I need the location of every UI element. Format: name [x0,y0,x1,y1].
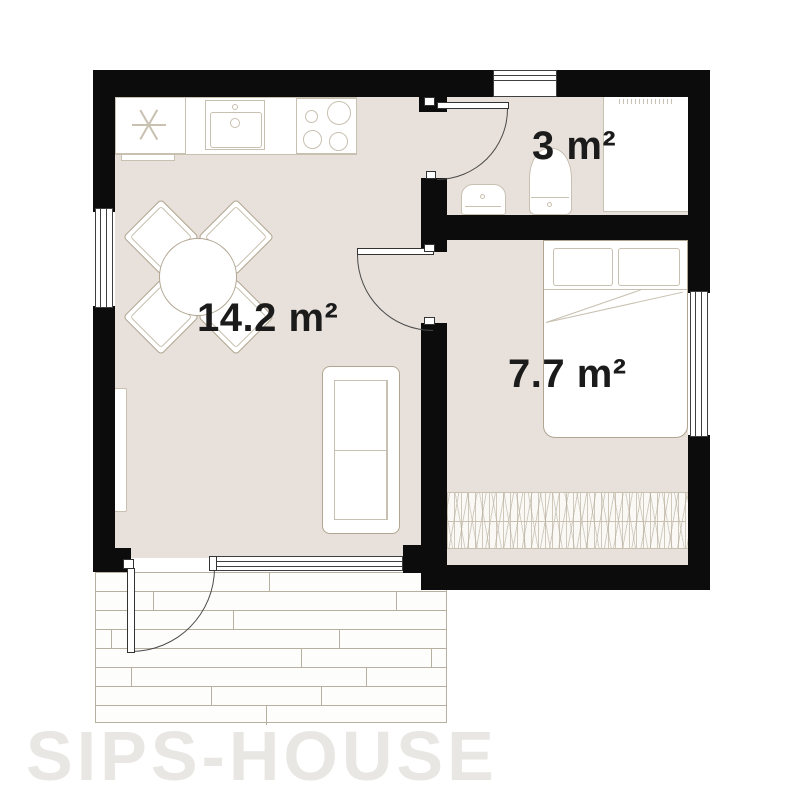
rug [440,492,688,549]
entry-door-leaf [127,568,135,653]
sofa [322,366,400,534]
deck-plank-seam [211,687,212,706]
deck-plank-seam [111,630,112,649]
deck-plank-seam [301,649,302,668]
stove-icon [296,98,357,154]
bed [543,240,688,438]
deck-plank-seam [269,573,270,592]
pillow [618,248,680,286]
bedroom-door-leaf [357,248,434,255]
deck-plank-seam [431,649,432,668]
wall-bath-bedroom [447,215,688,240]
deck-plank-seam [321,687,322,706]
drain-icon [230,118,240,128]
blanket-edge-line [544,289,687,290]
snowflake-icon [132,108,166,142]
pillow [553,248,613,286]
sink-front-line [465,206,501,207]
burner [329,132,348,151]
burner [303,130,322,149]
blanket-fold-line [546,289,641,323]
door-jamb [123,559,134,569]
room-label-living: 14.2 m² [197,296,338,341]
blanket-fold-line [546,292,683,323]
sink-drain-dot [480,194,485,199]
fridge-icon [115,97,186,154]
fridge-door-lip [121,154,175,161]
door-jamb [424,97,435,106]
toilet-tank-line [531,197,569,198]
wall-left-lower [93,306,115,558]
wall-right-upper [688,70,710,293]
window-bathroom [493,70,557,97]
burner [305,110,318,123]
deck-plank-seam [233,611,234,630]
room-label-bathroom: 3 m² [532,124,616,169]
window-living-south [213,556,403,571]
wardrobe-hatch-detail [619,99,674,104]
door-jamb [426,171,436,179]
bathroom-sink-icon [461,184,506,215]
sofa-cushion-divider [334,450,387,451]
deck-plank-seam [339,630,340,649]
door-jamb [424,317,435,325]
floor-plan: 14.2 m² 3 m² 7.7 m² SIPS-HOUSE [0,0,800,800]
bathroom-door-leaf [437,102,509,109]
radiator [114,388,127,512]
kitchen-sink-icon [205,100,265,150]
wall-bedroom-south [421,565,710,590]
wall-top-left [93,70,493,97]
faucet-dot [232,104,238,110]
window-jamb [209,556,217,571]
wall-middle-lower [421,323,447,567]
wall-living-south-stub [403,545,447,573]
toilet-flush-dot [547,202,552,207]
room-label-bedroom: 7.7 m² [508,352,627,397]
deck-plank-seam [396,592,397,611]
window-bedroom [690,291,708,437]
door-jamb [424,244,435,252]
deck-plank-seam [131,668,132,687]
wall-middle-mid [421,178,447,252]
watermark: SIPS-HOUSE [26,716,498,796]
burner [327,101,351,125]
window-left [95,208,113,308]
wall-left-upper [93,70,115,212]
rug-mid-line [440,521,686,522]
deck-plank-seam [366,668,367,687]
